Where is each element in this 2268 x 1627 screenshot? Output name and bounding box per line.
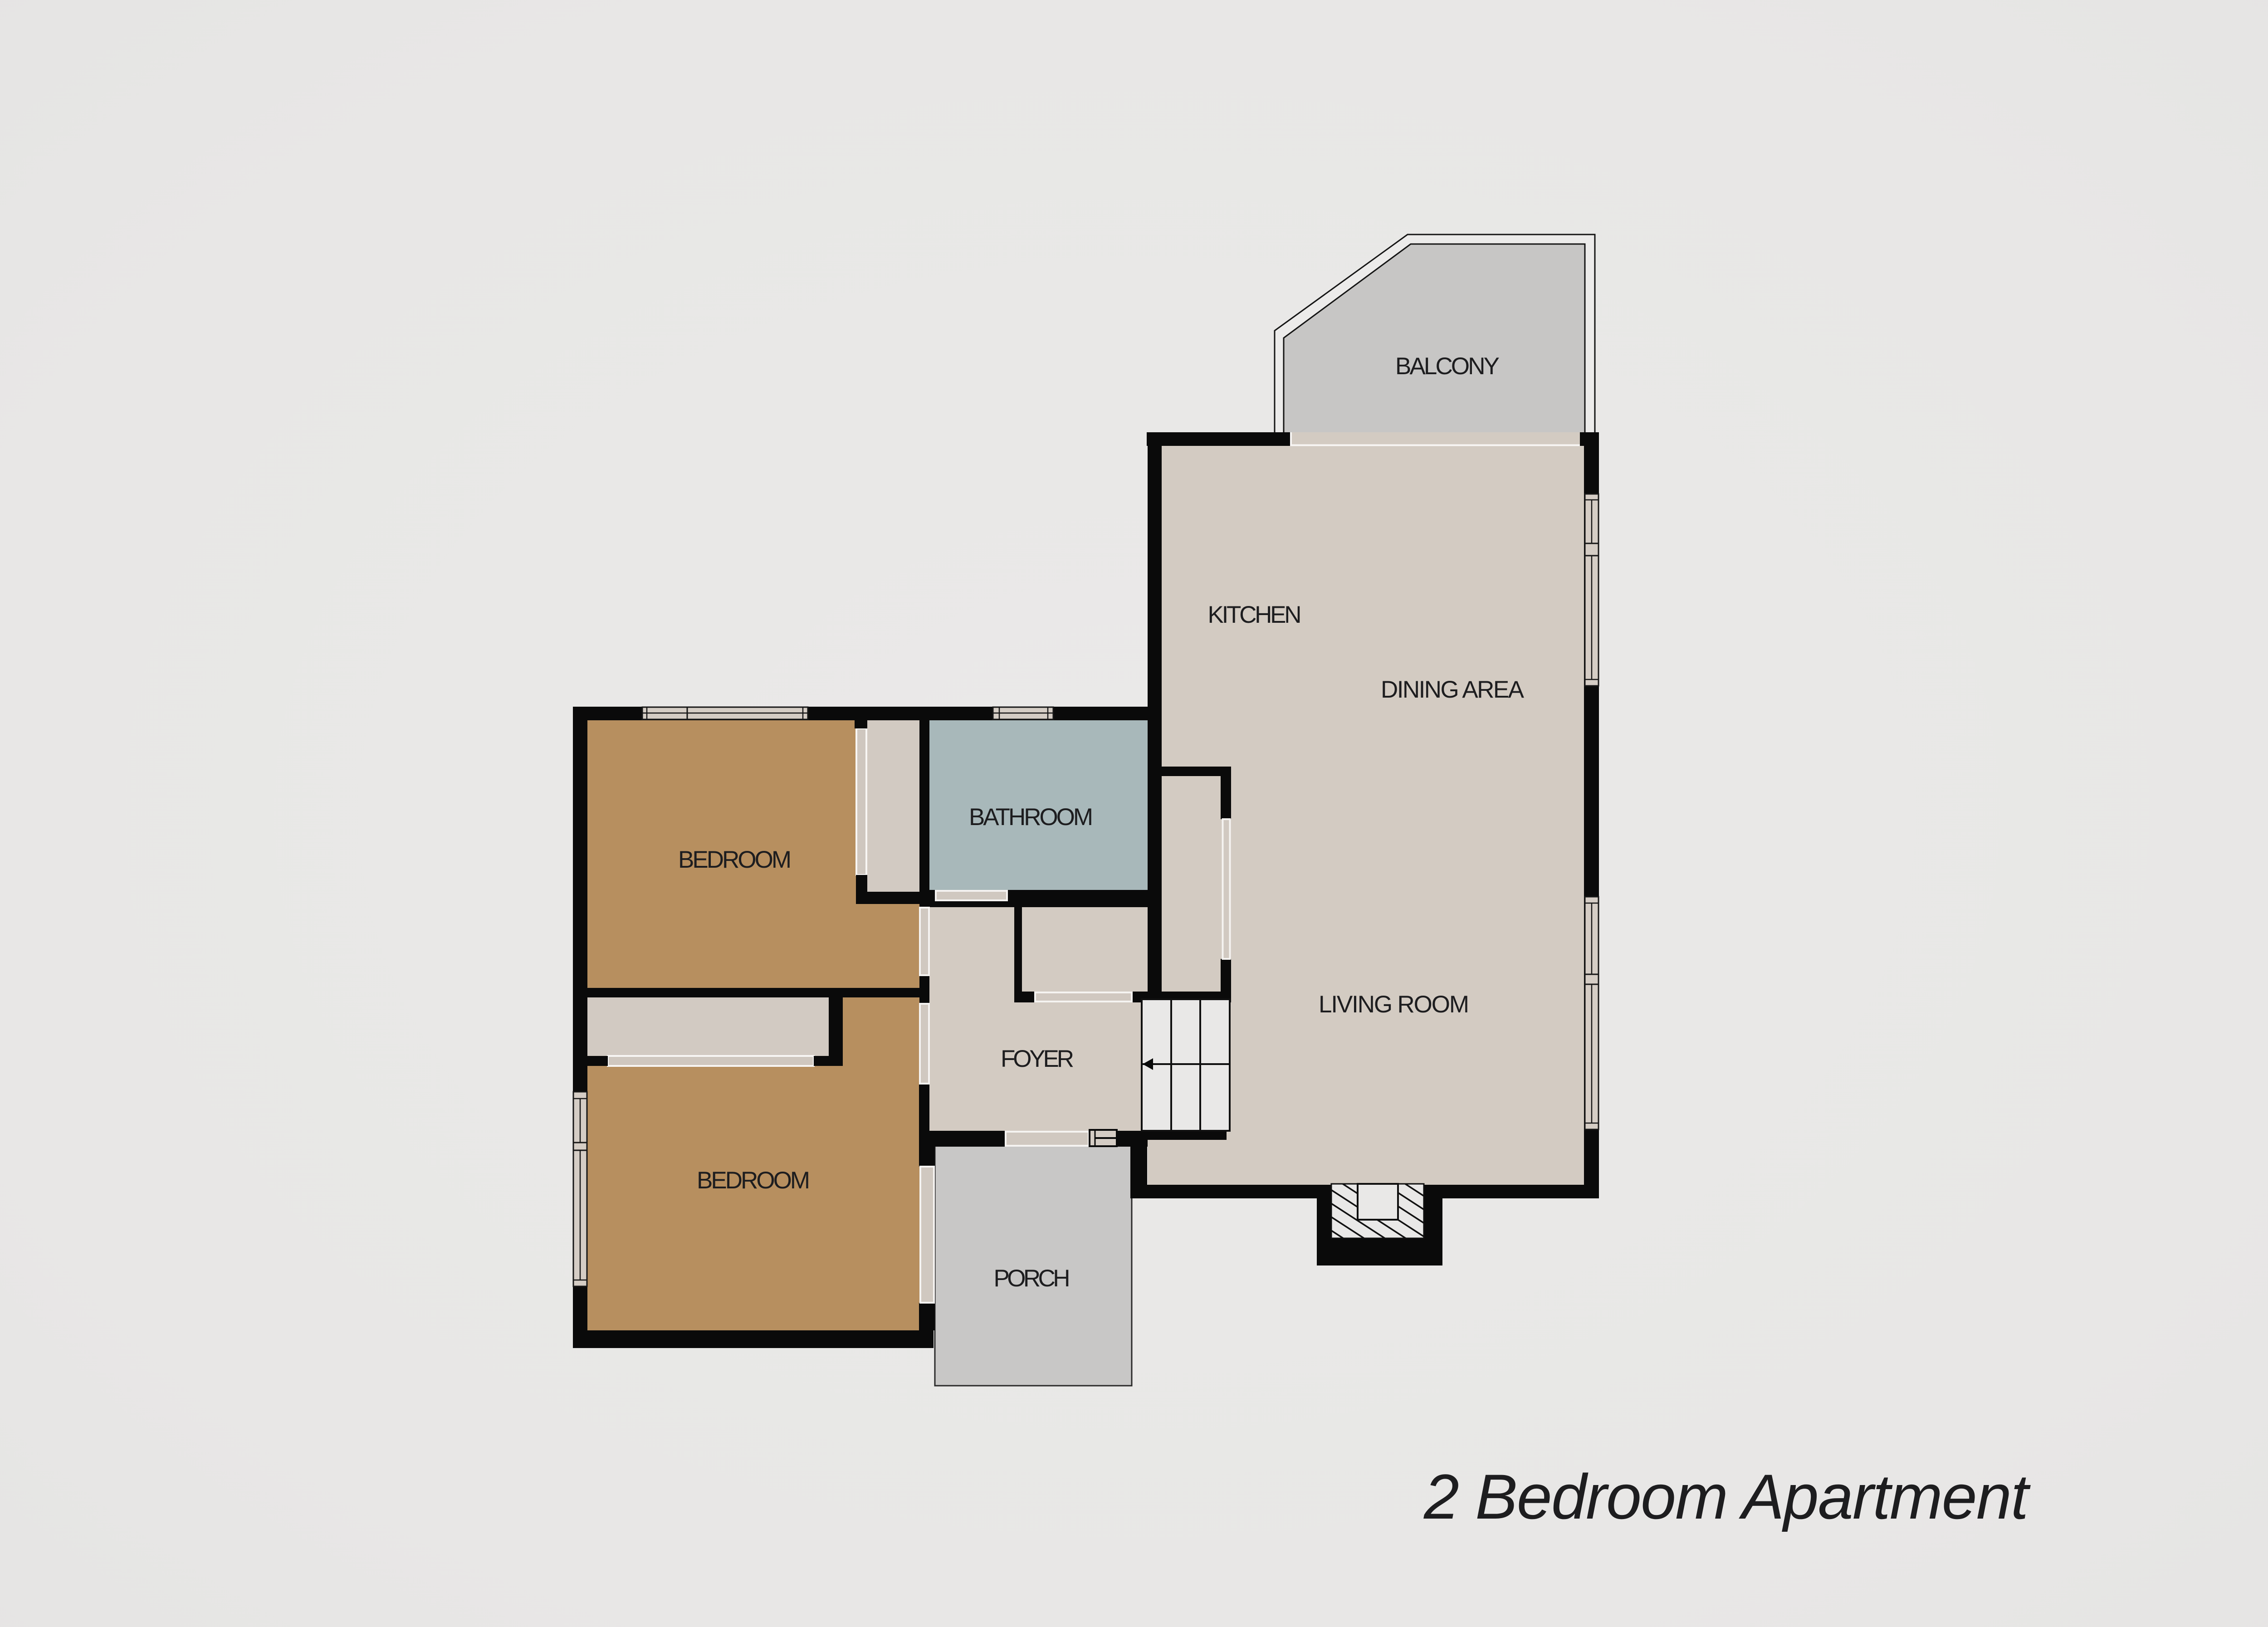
svg-text:DINING AREA: DINING AREA: [1381, 676, 1525, 703]
svg-text:PORCH: PORCH: [994, 1265, 1070, 1292]
svg-text:BEDROOM: BEDROOM: [678, 846, 792, 873]
svg-text:BATHROOM: BATHROOM: [969, 804, 1093, 831]
svg-text:2 Bedroom Apartment: 2 Bedroom Apartment: [1423, 1461, 2031, 1532]
svg-text:BEDROOM: BEDROOM: [697, 1167, 810, 1194]
svg-text:KITCHEN: KITCHEN: [1208, 601, 1302, 628]
svg-text:BALCONY: BALCONY: [1395, 353, 1500, 380]
svg-text:LIVING ROOM: LIVING ROOM: [1319, 991, 1469, 1018]
svg-text:FOYER: FOYER: [1001, 1046, 1074, 1072]
